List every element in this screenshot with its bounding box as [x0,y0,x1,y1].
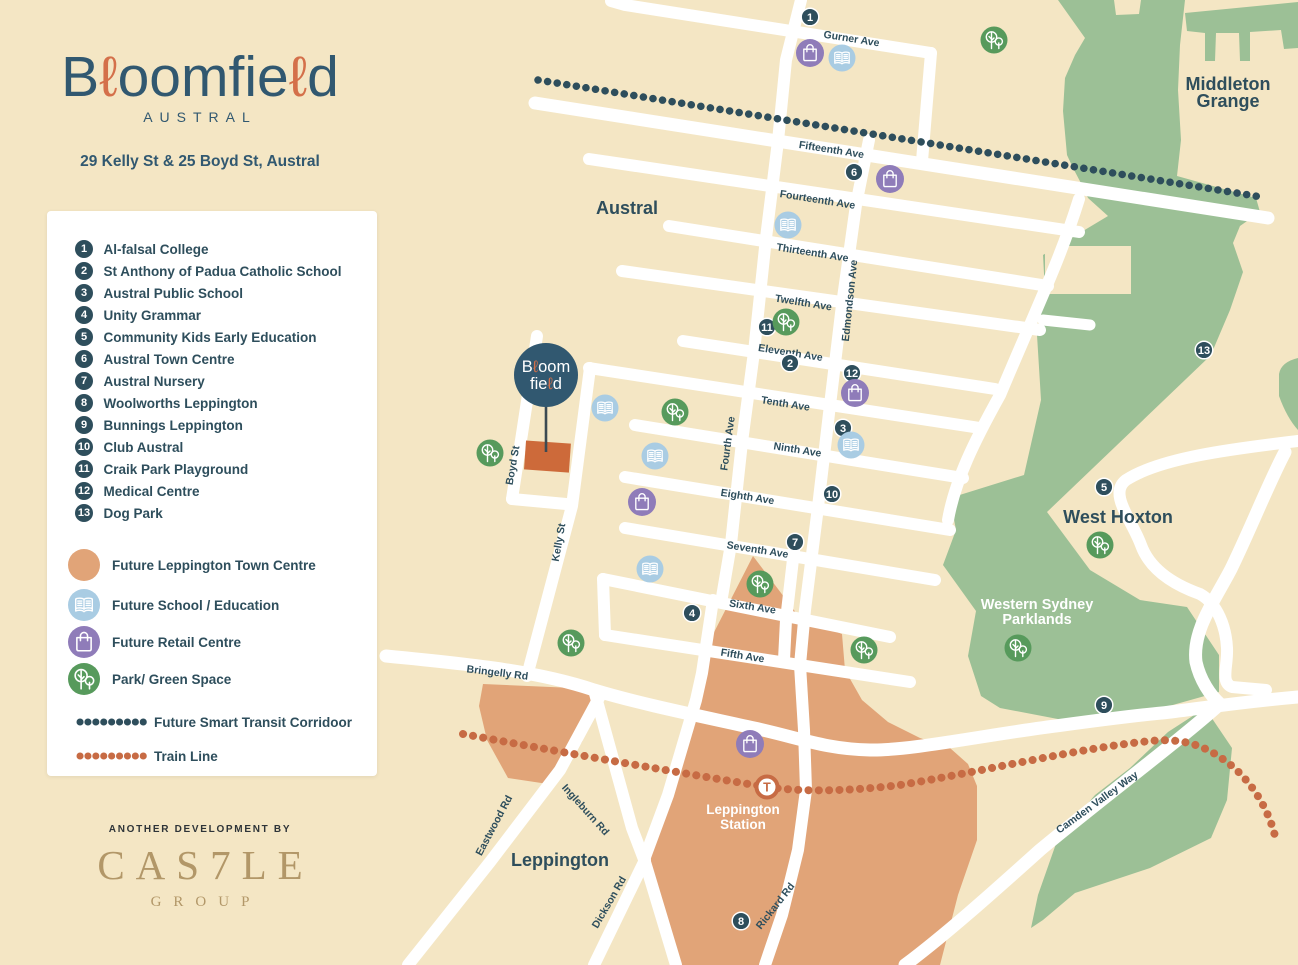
svg-text:12: 12 [846,368,858,380]
svg-text:11: 11 [761,322,773,334]
svg-text:4: 4 [689,608,696,620]
svg-text:Grange: Grange [1196,91,1259,111]
svg-text:8: 8 [738,916,744,928]
svg-text:10: 10 [826,489,838,501]
svg-text:Leppington: Leppington [706,802,779,817]
svg-text:fieℓd: fieℓd [530,375,562,393]
svg-text:9: 9 [1101,700,1107,712]
svg-text:5: 5 [1101,482,1107,494]
svg-text:2: 2 [787,358,793,370]
svg-text:Austral: Austral [596,198,658,218]
svg-text:West Hoxton: West Hoxton [1063,507,1173,527]
svg-text:Western Sydney: Western Sydney [981,597,1094,613]
svg-text:Train Line: Train Line [154,749,218,764]
svg-text:13: 13 [1198,345,1210,357]
svg-text:Parklands: Parklands [1002,612,1071,628]
svg-text:Future School / Education: Future School / Education [112,598,279,613]
svg-text:Future Retail Centre: Future Retail Centre [112,635,242,650]
svg-text:Bℓoom: Bℓoom [522,358,570,376]
svg-text:Park/ Green Space: Park/ Green Space [112,672,232,687]
svg-text:Future Smart Transit Corridoor: Future Smart Transit Corridoor [154,715,353,730]
svg-text:Leppington: Leppington [511,850,609,870]
svg-text:1: 1 [807,12,813,24]
svg-text:Future Leppington Town Centre: Future Leppington Town Centre [112,558,316,573]
svg-text:T: T [763,781,771,795]
svg-text:Station: Station [720,817,766,832]
svg-text:7: 7 [792,537,798,549]
svg-text:6: 6 [851,167,857,179]
